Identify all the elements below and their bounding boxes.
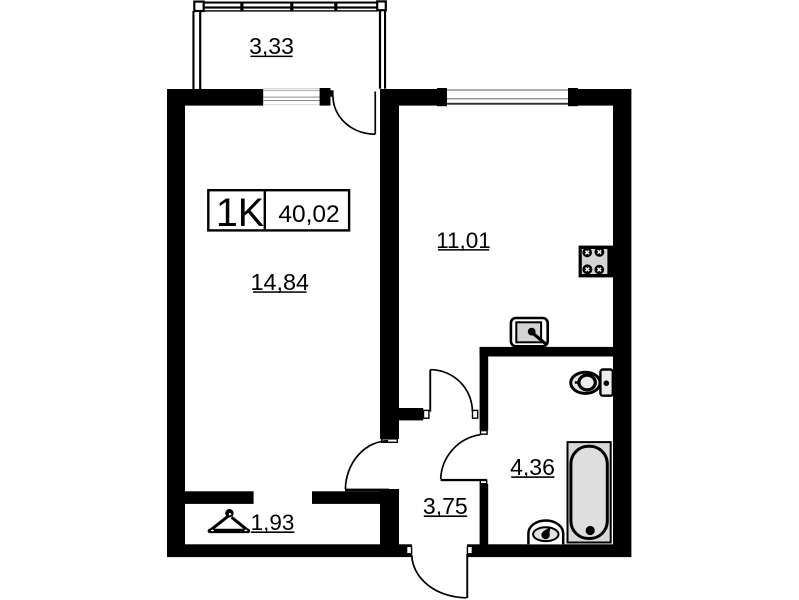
- svg-text:3,75: 3,75: [423, 493, 468, 519]
- svg-text:14,84: 14,84: [251, 269, 310, 295]
- svg-text:1,93: 1,93: [251, 510, 295, 535]
- svg-text:3,33: 3,33: [249, 33, 294, 59]
- svg-text:4,36: 4,36: [510, 454, 555, 480]
- svg-text:1K: 1K: [216, 191, 264, 235]
- svg-text:40,02: 40,02: [278, 201, 339, 228]
